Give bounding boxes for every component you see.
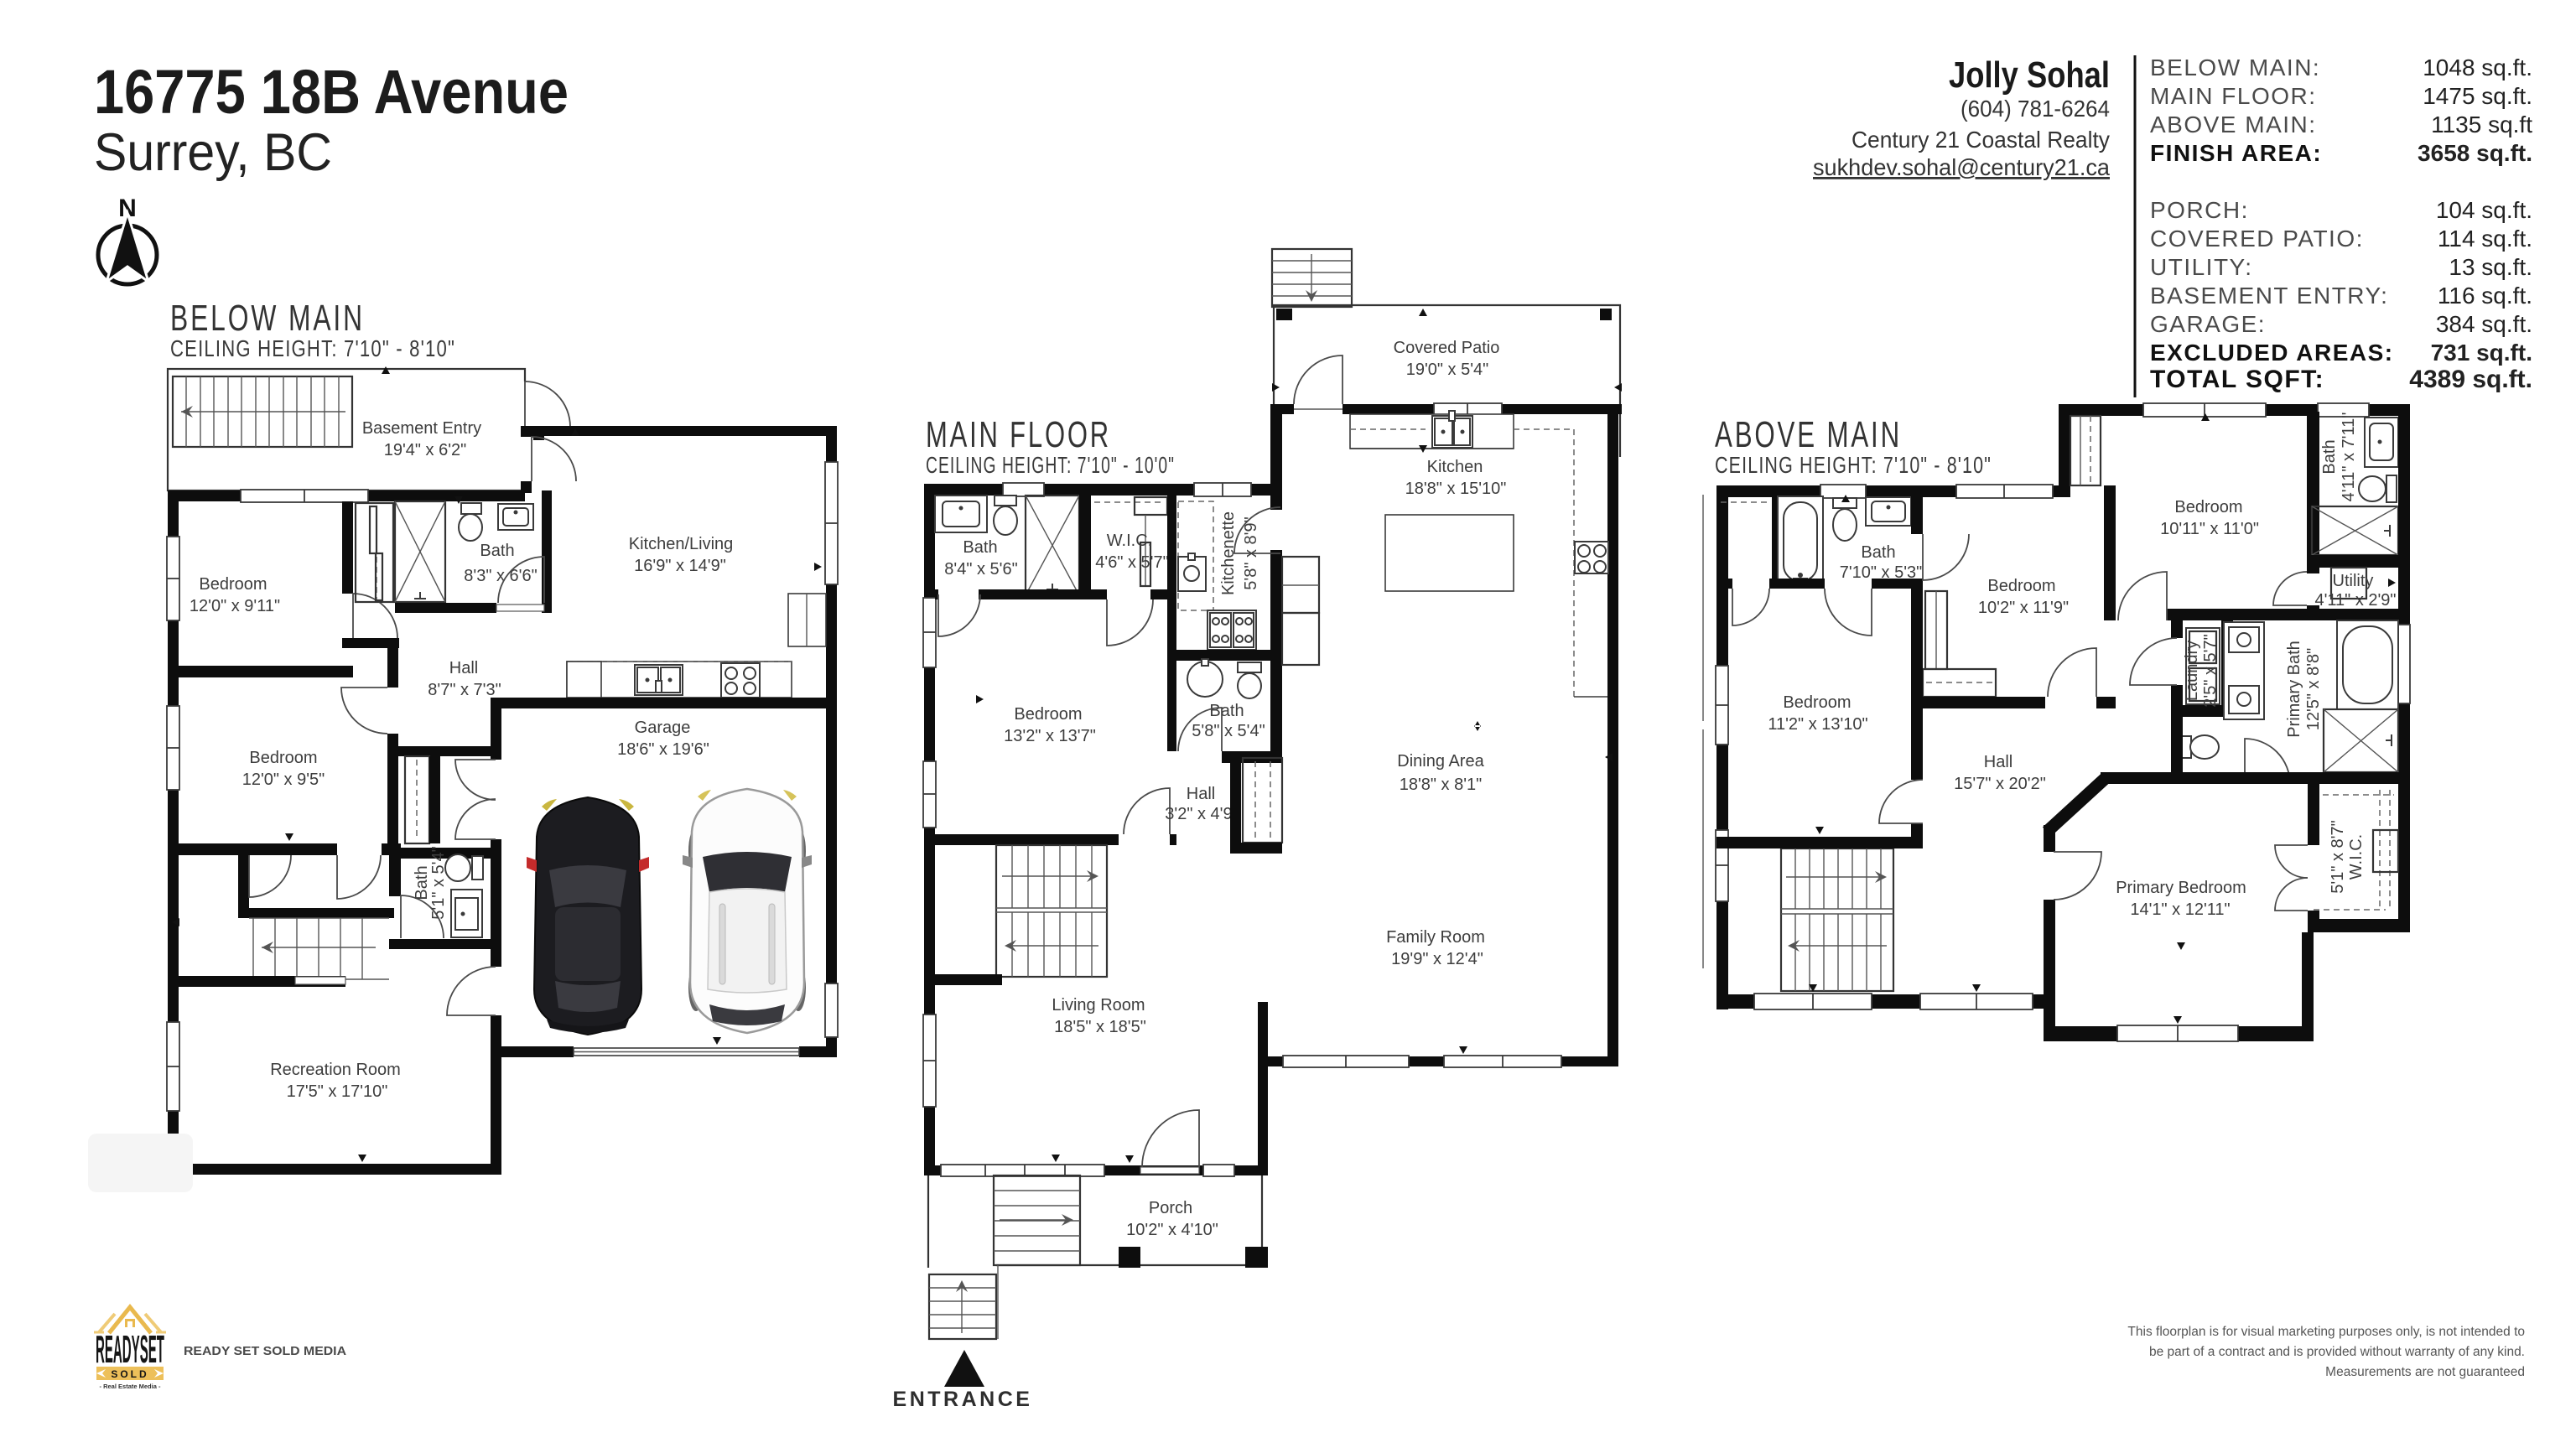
svg-text:8'7" x 7'3": 8'7" x 7'3": [428, 681, 501, 699]
svg-text:Dining Area: Dining Area: [1397, 752, 1484, 771]
svg-text:READY SET SOLD MEDIA: READY SET SOLD MEDIA: [184, 1344, 346, 1358]
svg-text:ABOVE MAIN: ABOVE MAIN: [1715, 414, 1902, 455]
svg-text:Bath: Bath: [413, 865, 431, 900]
svg-text:PORCH:: PORCH:: [2150, 197, 2249, 223]
svg-text:1475 sq.ft.: 1475 sq.ft.: [2423, 83, 2532, 109]
svg-text:2'5" x 5'7": 2'5" x 5'7": [2201, 634, 2220, 707]
svg-text:Hall: Hall: [1984, 753, 2012, 771]
svg-text:16'9" x 14'9": 16'9" x 14'9": [634, 557, 726, 575]
svg-text:10'2" x 11'9": 10'2" x 11'9": [1978, 599, 2069, 617]
svg-text:MAIN FLOOR:: MAIN FLOOR:: [2150, 83, 2317, 109]
svg-text:Jolly Sohal: Jolly Sohal: [1949, 54, 2110, 96]
svg-text:Bath: Bath: [2320, 439, 2339, 474]
svg-text:13 sq.ft.: 13 sq.ft.: [2449, 254, 2532, 280]
svg-text:BELOW MAIN:: BELOW MAIN:: [2150, 54, 2320, 80]
svg-text:BASEMENT ENTRY:: BASEMENT ENTRY:: [2150, 283, 2388, 309]
svg-text:19'4" x 6'2": 19'4" x 6'2": [384, 441, 467, 459]
svg-text:(604) 781-6264: (604) 781-6264: [1961, 96, 2110, 122]
svg-text:19'0" x 5'4": 19'0" x 5'4": [1406, 361, 1489, 379]
svg-text:Bedroom: Bedroom: [199, 575, 267, 594]
svg-text:17'5" x 17'10": 17'5" x 17'10": [287, 1082, 388, 1101]
svg-text:Bedroom: Bedroom: [2174, 498, 2242, 516]
svg-text:Utility: Utility: [2333, 572, 2374, 590]
svg-text:This floorplan is for visual m: This floorplan is for visual marketing p…: [2127, 1325, 2525, 1339]
svg-text:ABOVE MAIN:: ABOVE MAIN:: [2150, 112, 2317, 138]
svg-text:114 sq.ft.: 114 sq.ft.: [2438, 226, 2532, 252]
svg-text:TOTAL SQFT:: TOTAL SQFT:: [2150, 366, 2324, 393]
svg-text:- Real Estate Media -: - Real Estate Media -: [100, 1383, 161, 1390]
svg-text:Kitchen/Living: Kitchen/Living: [629, 535, 734, 553]
svg-text:12'0" x 9'11": 12'0" x 9'11": [190, 597, 280, 615]
svg-text:10'2" x 4'10": 10'2" x 4'10": [1126, 1221, 1218, 1239]
svg-text:12'0" x 9'5": 12'0" x 9'5": [242, 771, 325, 789]
svg-text:18'6" x 19'6": 18'6" x 19'6": [617, 740, 709, 759]
svg-text:Surrey, BC: Surrey, BC: [94, 123, 332, 182]
svg-text:W.I.C.: W.I.C.: [2347, 834, 2366, 880]
svg-text:18'5" x 18'5": 18'5" x 18'5": [1054, 1018, 1146, 1036]
svg-text:18'8" x 15'10": 18'8" x 15'10": [1405, 480, 1507, 498]
svg-text:Covered Patio: Covered Patio: [1394, 339, 1500, 357]
svg-text:Basement Entry: Basement Entry: [362, 419, 481, 438]
svg-text:1135 sq.ft: 1135 sq.ft: [2431, 112, 2532, 138]
svg-text:GARAGE:: GARAGE:: [2150, 311, 2266, 337]
svg-text:15'7" x 20'2": 15'7" x 20'2": [1954, 775, 2046, 793]
svg-text:FINISH AREA:: FINISH AREA:: [2150, 140, 2322, 166]
svg-text:CEILING HEIGHT: 7'10" - 8'10": CEILING HEIGHT: 7'10" - 8'10": [1715, 452, 1992, 478]
svg-text:Bath: Bath: [963, 538, 997, 557]
svg-text:1048 sq.ft.: 1048 sq.ft.: [2423, 54, 2532, 80]
svg-text:11'2" x 13'10": 11'2" x 13'10": [1768, 715, 1867, 734]
svg-text:8'3" x 6'6": 8'3" x 6'6": [464, 567, 537, 585]
svg-text:12'5" x 8'8": 12'5" x 8'8": [2304, 648, 2323, 731]
svg-text:Porch: Porch: [1149, 1199, 1192, 1217]
svg-text:sukhdev.sohal@century21.ca: sukhdev.sohal@century21.ca: [1813, 154, 2110, 180]
svg-text:BELOW MAIN: BELOW MAIN: [170, 298, 365, 339]
svg-text:16775 18B Avenue: 16775 18B Avenue: [94, 57, 569, 127]
svg-text:14'1" x 12'11": 14'1" x 12'11": [2130, 900, 2230, 919]
svg-text:Family Room: Family Room: [1386, 928, 1485, 947]
svg-text:5'8" x 5'4": 5'8" x 5'4": [1192, 722, 1265, 740]
svg-text:5'1" x 8'7": 5'1" x 8'7": [2329, 820, 2347, 893]
svg-text:Bath: Bath: [480, 542, 514, 560]
svg-text:MAIN FLOOR: MAIN FLOOR: [926, 414, 1111, 455]
svg-text:CEILING HEIGHT: 7'10" - 10'0": CEILING HEIGHT: 7'10" - 10'0": [926, 452, 1175, 478]
svg-text:Bedroom: Bedroom: [1014, 705, 1082, 724]
svg-text:READYSET: READYSET: [96, 1327, 164, 1371]
svg-text:Living Room: Living Room: [1052, 996, 1145, 1015]
svg-text:Hall: Hall: [449, 659, 478, 677]
svg-text:Measurements are not guarantee: Measurements are not guaranteed: [2325, 1365, 2525, 1379]
svg-text:13'2" x 13'7": 13'2" x 13'7": [1004, 727, 1096, 745]
svg-text:Primary Bedroom: Primary Bedroom: [2116, 879, 2246, 897]
svg-text:be part of a contract and is p: be part of a contract and is provided wi…: [2149, 1345, 2525, 1359]
svg-text:4'6" x 5'7": 4'6" x 5'7": [1095, 553, 1168, 572]
svg-text:Laundry: Laundry: [2183, 641, 2201, 701]
svg-text:5'1" x 5'4": 5'1" x 5'4": [429, 846, 448, 919]
svg-text:COVERED PATIO:: COVERED PATIO:: [2150, 226, 2364, 252]
svg-text:ENTRANCE: ENTRANCE: [893, 1388, 1033, 1411]
svg-text:104 sq.ft.: 104 sq.ft.: [2436, 197, 2532, 223]
svg-text:Hall: Hall: [1187, 785, 1215, 803]
svg-text:Century 21 Coastal Realty: Century 21 Coastal Realty: [1851, 127, 2110, 153]
svg-text:116 sq.ft.: 116 sq.ft.: [2438, 283, 2532, 309]
svg-text:3'2" x 4'9": 3'2" x 4'9": [1165, 805, 1238, 823]
svg-text:Garage: Garage: [635, 719, 691, 737]
svg-text:4389 sq.ft.: 4389 sq.ft.: [2409, 366, 2532, 393]
svg-text:10'11" x 11'0": 10'11" x 11'0": [2160, 520, 2259, 538]
svg-text:Bath: Bath: [1209, 702, 1244, 720]
svg-text:19'9" x 12'4": 19'9" x 12'4": [1391, 950, 1483, 968]
svg-text:3658 sq.ft.: 3658 sq.ft.: [2418, 140, 2532, 166]
svg-text:8'4" x 5'6": 8'4" x 5'6": [944, 560, 1017, 579]
svg-text:4'11" x 7'11": 4'11" x 7'11": [2340, 413, 2358, 502]
svg-text:Bedroom: Bedroom: [1987, 577, 2055, 595]
svg-text:Recreation Room: Recreation Room: [270, 1061, 401, 1079]
svg-text:CEILING HEIGHT: 7'10" - 8'10": CEILING HEIGHT: 7'10" - 8'10": [170, 335, 455, 361]
svg-text:UTILITY:: UTILITY:: [2150, 254, 2252, 280]
svg-text:Bedroom: Bedroom: [249, 749, 317, 767]
svg-text:SOLD: SOLD: [111, 1368, 148, 1380]
svg-text:4'11" x 2'9": 4'11" x 2'9": [2314, 591, 2396, 610]
svg-text:Kitchen: Kitchen: [1427, 458, 1483, 476]
svg-text:18'8" x 8'1": 18'8" x 8'1": [1400, 776, 1483, 794]
svg-text:EXCLUDED AREAS:: EXCLUDED AREAS:: [2150, 340, 2394, 366]
svg-text:W.I.C.: W.I.C.: [1107, 532, 1152, 550]
svg-text:5'8" x 8'9": 5'8" x 8'9": [1242, 516, 1260, 589]
svg-text:Bedroom: Bedroom: [1783, 693, 1851, 712]
svg-text:Bath: Bath: [1861, 543, 1895, 562]
svg-text:Kitchenette: Kitchenette: [1219, 511, 1238, 595]
svg-text:731 sq.ft.: 731 sq.ft.: [2431, 340, 2532, 366]
svg-text:Primary Bath: Primary Bath: [2285, 641, 2303, 738]
svg-text:384 sq.ft.: 384 sq.ft.: [2436, 311, 2532, 337]
